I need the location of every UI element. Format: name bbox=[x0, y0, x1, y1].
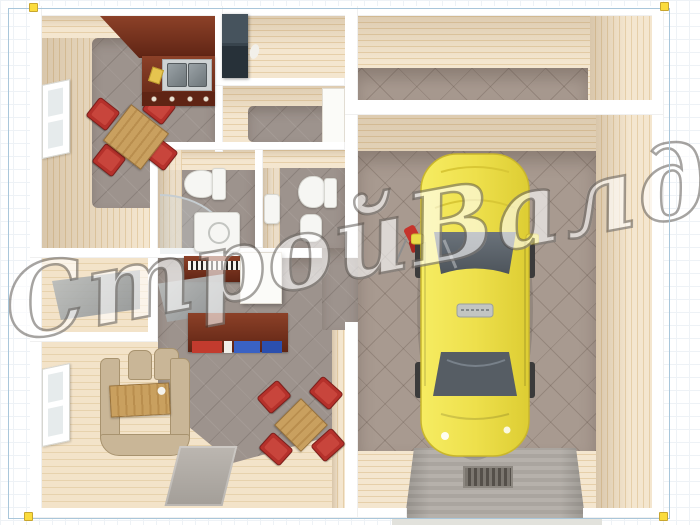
piano-keys bbox=[188, 261, 242, 270]
hall-door-panel bbox=[322, 88, 345, 146]
floor-drain bbox=[463, 466, 513, 488]
wall-garage-upper bbox=[345, 6, 358, 258]
kitchen-stove bbox=[142, 92, 215, 106]
wall-outer-bottom-right bbox=[583, 508, 664, 518]
wall-storage-east bbox=[148, 258, 158, 342]
corner-pin-top-left bbox=[29, 3, 38, 12]
cup bbox=[157, 387, 165, 395]
window-glass bbox=[48, 120, 63, 149]
corner-pin-top-right bbox=[660, 2, 669, 11]
white-book bbox=[224, 341, 232, 353]
corner-pin-bottom-right bbox=[659, 512, 668, 521]
coffee-table bbox=[109, 382, 171, 417]
wall-hall-bathrooms bbox=[150, 142, 345, 150]
red-chair bbox=[308, 375, 344, 410]
wall-between-bathrooms bbox=[255, 150, 263, 248]
top-right-room-floor bbox=[356, 68, 588, 100]
car-mirror-right bbox=[526, 234, 539, 244]
wc-wall-face bbox=[262, 150, 345, 168]
floorplan-canvas: СтройВалдай bbox=[0, 0, 700, 525]
wall-garage-lower bbox=[345, 322, 358, 518]
wc-toilet-bowl bbox=[298, 176, 326, 208]
driveway-apron bbox=[392, 518, 602, 525]
blue-books bbox=[262, 341, 282, 353]
wall-outer-left bbox=[30, 6, 42, 518]
wc-toilet-tank bbox=[324, 178, 337, 208]
kitchen-window bbox=[42, 79, 70, 159]
trunk-highlight bbox=[441, 432, 449, 440]
wall-storage-south bbox=[30, 332, 158, 342]
sink-basin-right bbox=[188, 63, 207, 87]
armchair bbox=[128, 350, 152, 380]
garage-doorway-floor bbox=[322, 248, 358, 330]
white-cabinet bbox=[240, 252, 282, 304]
refrigerator bbox=[222, 14, 248, 78]
trunk-highlight bbox=[504, 427, 511, 434]
wall-entrance-hall bbox=[215, 78, 345, 86]
car-rear-window bbox=[433, 352, 517, 396]
cart-handle bbox=[395, 239, 407, 264]
top-right-room-corner bbox=[590, 16, 652, 100]
sofa-seat bbox=[100, 434, 190, 456]
living-window bbox=[42, 363, 70, 447]
wall-outer-right bbox=[652, 6, 664, 518]
red-chair bbox=[256, 379, 292, 414]
window-glass bbox=[48, 372, 63, 403]
wall-topright-garage bbox=[345, 100, 664, 115]
washing-machine bbox=[194, 212, 240, 252]
red-books bbox=[192, 341, 222, 353]
living-dining-set bbox=[258, 380, 340, 462]
book-row bbox=[192, 341, 282, 353]
blue-books bbox=[234, 341, 260, 353]
window-glass bbox=[48, 88, 63, 117]
corner-pin-bottom-left bbox=[24, 512, 33, 521]
washer-drum bbox=[208, 222, 230, 244]
wc-sink bbox=[264, 194, 280, 224]
sink-basin-left bbox=[167, 63, 187, 87]
car-mirror-left bbox=[411, 234, 424, 244]
kitchen-sink bbox=[162, 59, 212, 91]
yellow-car bbox=[411, 146, 539, 468]
garage-right-wall-face bbox=[596, 115, 652, 508]
car-windshield bbox=[434, 232, 516, 274]
kitchen-dining-set bbox=[90, 96, 178, 174]
bidet bbox=[300, 214, 322, 242]
toilet-tank bbox=[212, 168, 226, 200]
window-glass bbox=[48, 406, 63, 437]
